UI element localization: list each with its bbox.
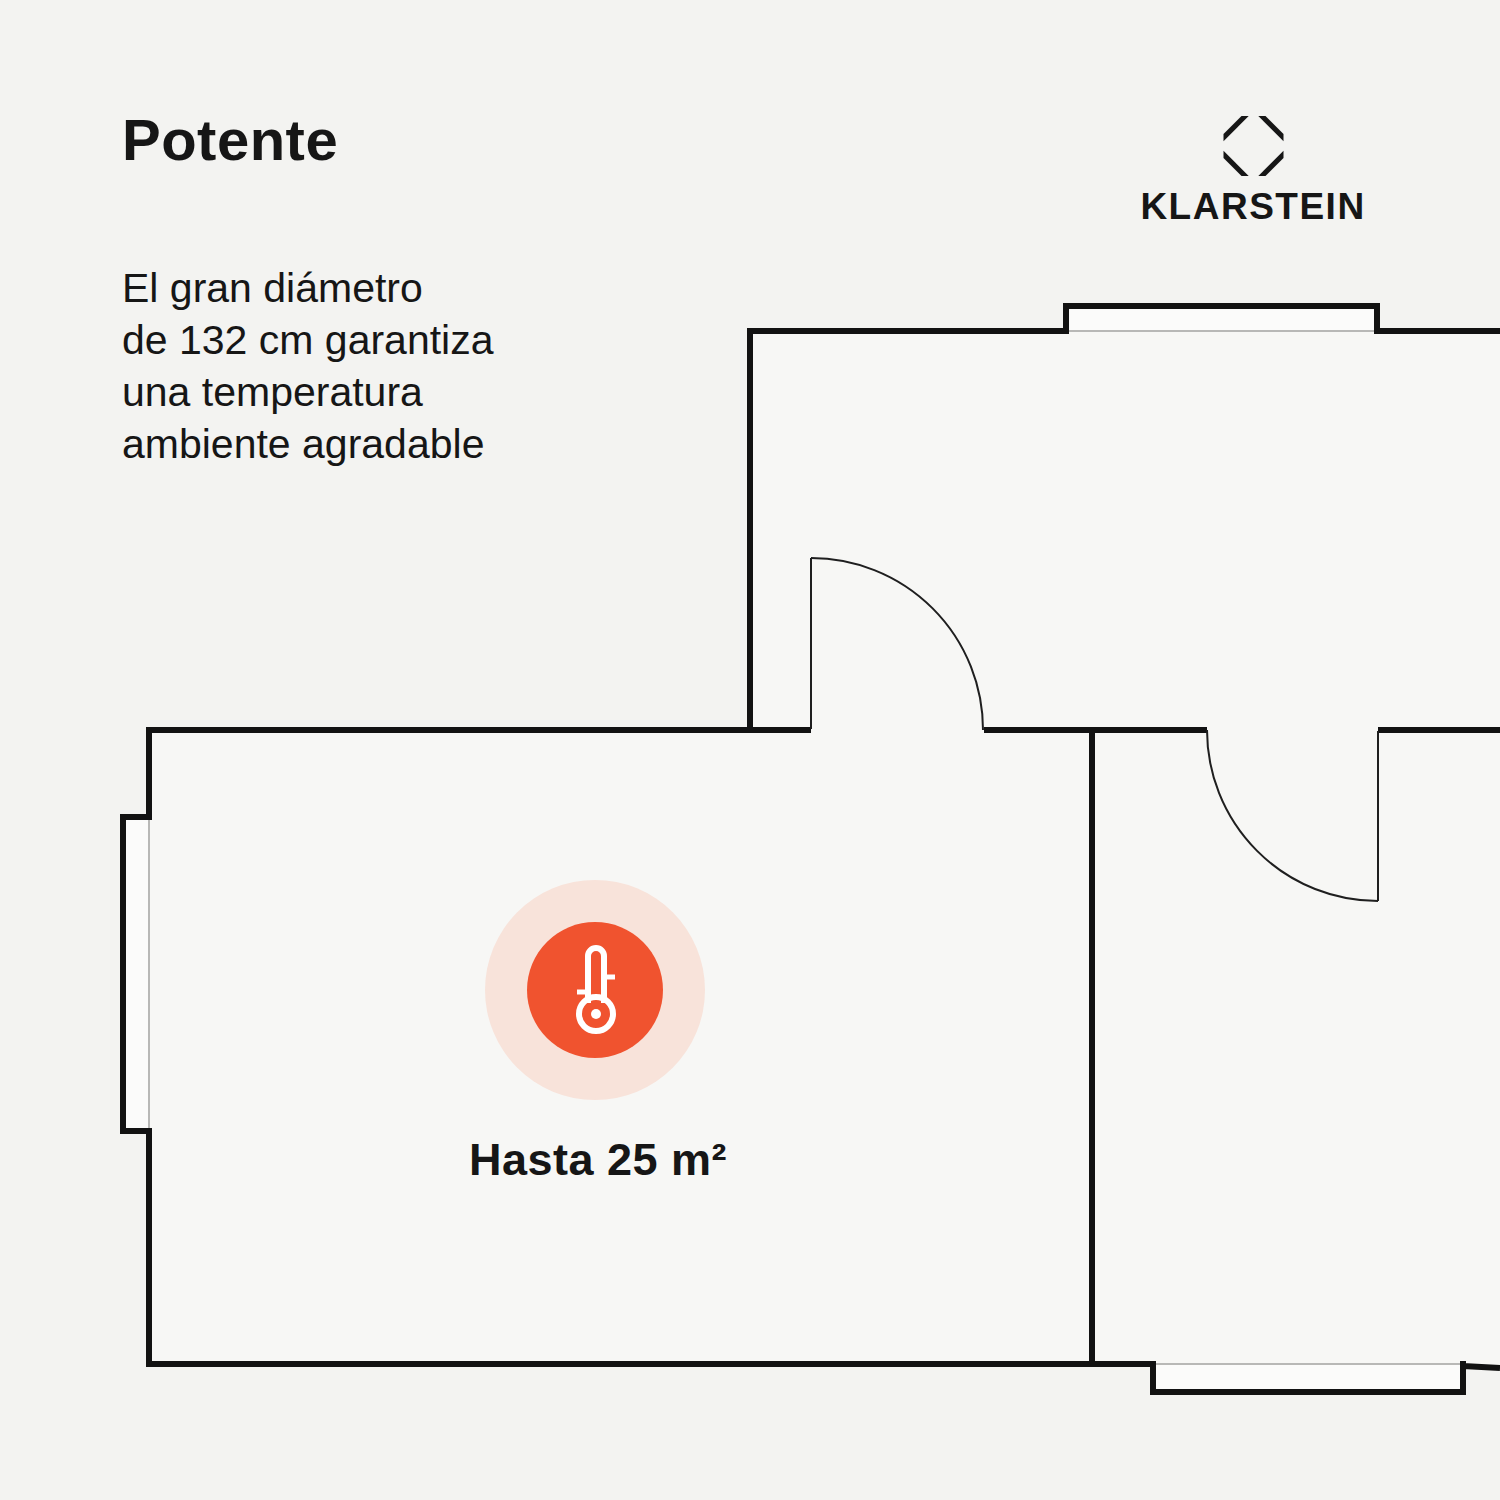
heat-range-disc xyxy=(527,922,663,1058)
area-label: Hasta 25 m² xyxy=(469,1134,727,1186)
brand-block: KLARSTEIN xyxy=(1122,116,1384,228)
brand-wordmark: KLARSTEIN xyxy=(1122,186,1384,228)
page-title: Potente xyxy=(122,106,338,173)
klarstein-octagon-logo-icon xyxy=(1223,116,1284,176)
marketing-slide: Potente El gran diámetro de 132 cm garan… xyxy=(0,0,1500,1500)
description-line: El gran diámetro xyxy=(122,262,494,314)
description-line: de 132 cm garantiza xyxy=(122,314,494,366)
description-paragraph: El gran diámetro de 132 cm garantiza una… xyxy=(122,262,494,470)
room-interiors xyxy=(149,331,1500,1364)
description-line: una temperatura xyxy=(122,366,494,418)
description-line: ambiente agradable xyxy=(122,418,494,470)
